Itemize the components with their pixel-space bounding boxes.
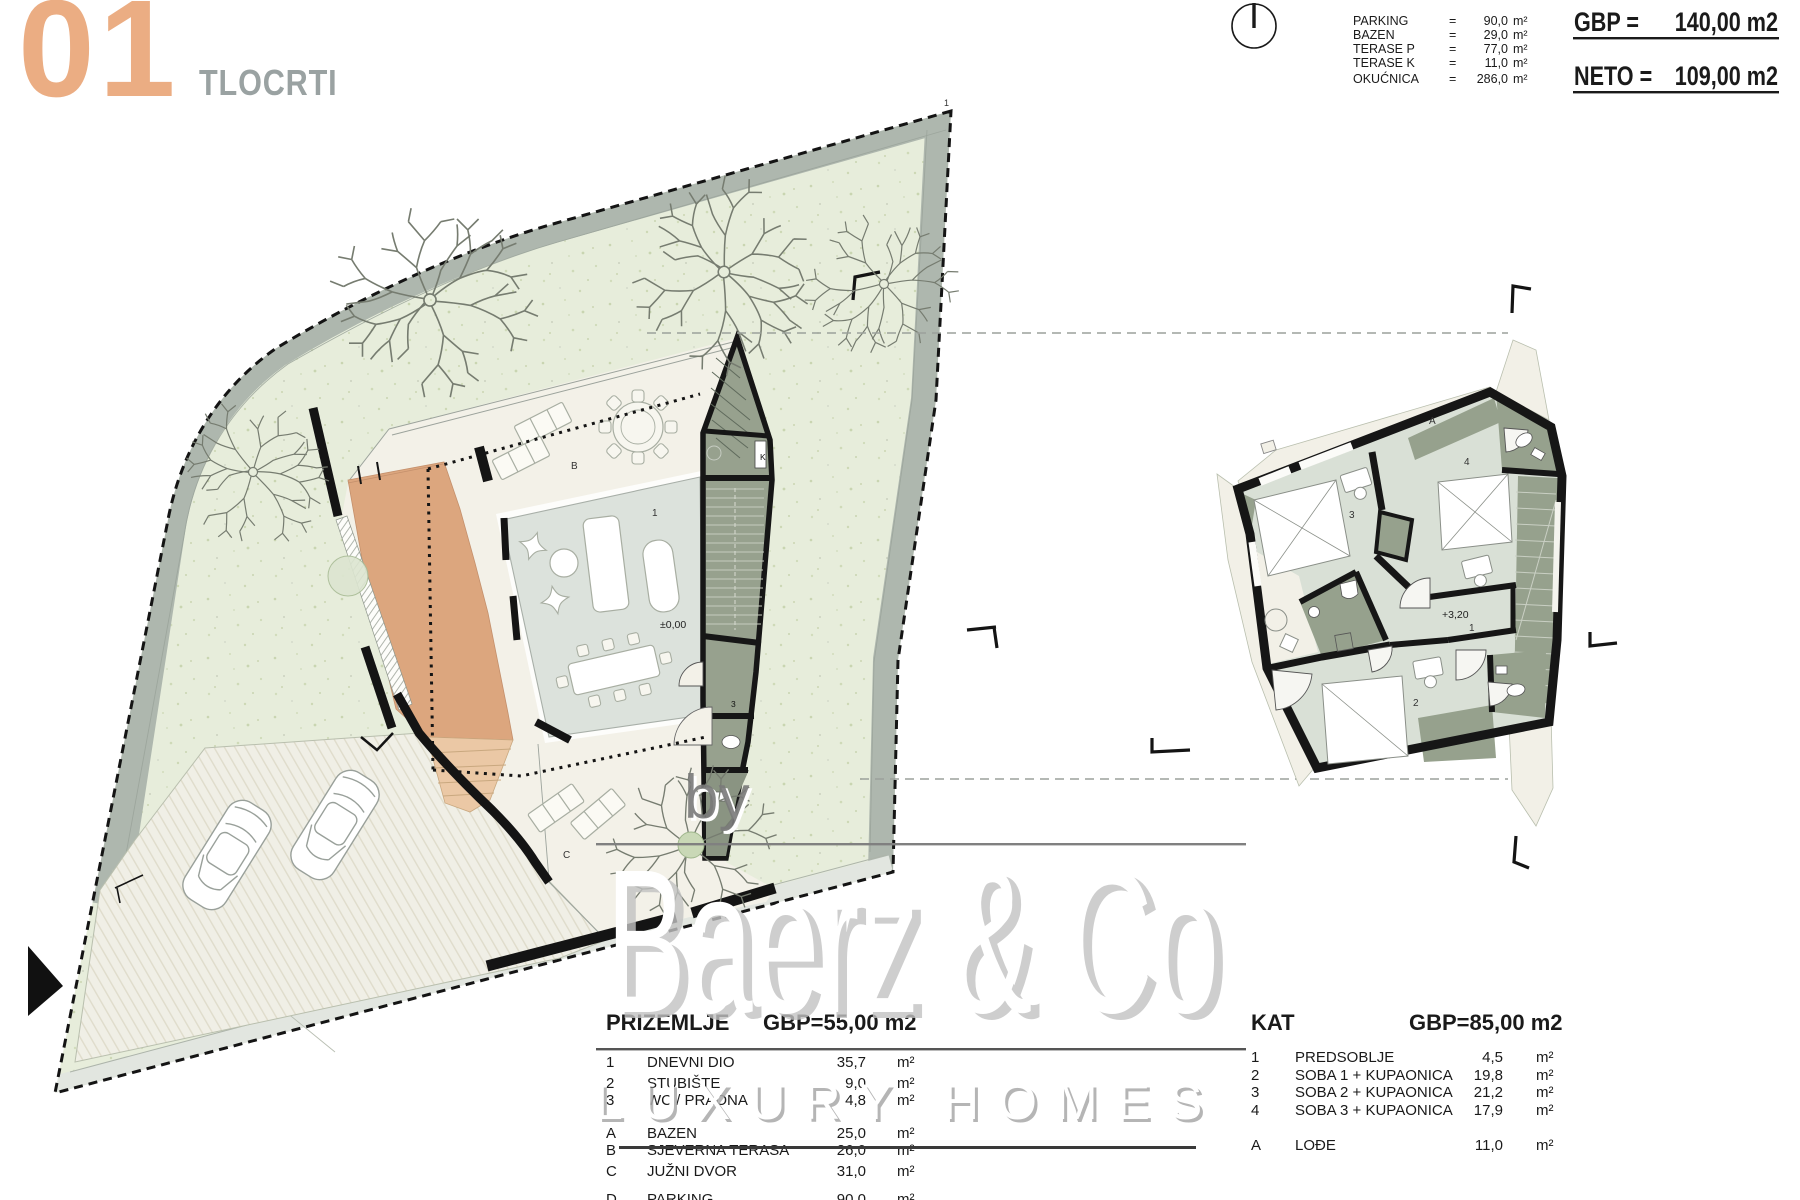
svg-text:17,9: 17,9 xyxy=(1474,1102,1503,1119)
svg-text:C: C xyxy=(563,850,570,861)
svg-text:4: 4 xyxy=(1464,457,1470,468)
svg-text:SOBA 2 + KUPAONICA: SOBA 2 + KUPAONICA xyxy=(1295,1084,1453,1101)
svg-text:K: K xyxy=(760,452,766,462)
svg-text:11,0: 11,0 xyxy=(1485,56,1508,70)
svg-text:m²: m² xyxy=(1536,1102,1554,1119)
svg-text:=: = xyxy=(1449,56,1456,70)
svg-text:01: 01 xyxy=(18,0,180,126)
svg-text:LUXURY HOMES: LUXURY HOMES xyxy=(595,1074,1221,1130)
svg-text:KAT: KAT xyxy=(1251,1010,1295,1035)
svg-text:m²: m² xyxy=(1513,72,1528,86)
svg-text:+3,20: +3,20 xyxy=(1442,609,1469,621)
svg-text:OKUĆNICA: OKUĆNICA xyxy=(1353,71,1420,86)
svg-text:2: 2 xyxy=(1251,1067,1259,1084)
svg-text:3: 3 xyxy=(1251,1084,1259,1101)
svg-text:SJEVERNA TERASA: SJEVERNA TERASA xyxy=(647,1142,789,1159)
svg-text:B: B xyxy=(571,461,578,472)
svg-text:BAZEN: BAZEN xyxy=(1353,28,1395,42)
svg-text:31,0: 31,0 xyxy=(837,1163,866,1180)
svg-text:TERASE K: TERASE K xyxy=(1353,56,1415,70)
svg-text:1: 1 xyxy=(606,1054,614,1071)
svg-text:26,0: 26,0 xyxy=(837,1142,866,1159)
svg-text:m²: m² xyxy=(897,1191,915,1200)
svg-text:GBP=85,00 m2: GBP=85,00 m2 xyxy=(1409,1010,1562,1035)
svg-text:4: 4 xyxy=(1251,1102,1259,1119)
svg-text:PARKING: PARKING xyxy=(647,1191,713,1200)
svg-text:1: 1 xyxy=(944,98,949,108)
svg-text:29,0: 29,0 xyxy=(1484,28,1508,42)
svg-text:1: 1 xyxy=(1469,623,1475,634)
svg-text:SOBA 3 + KUPAONICA: SOBA 3 + KUPAONICA xyxy=(1295,1102,1453,1119)
svg-text:m²: m² xyxy=(897,1163,915,1180)
svg-text:19,8: 19,8 xyxy=(1474,1067,1503,1084)
svg-text:=: = xyxy=(1449,28,1456,42)
svg-text:by: by xyxy=(684,763,749,832)
svg-text:=: = xyxy=(1449,14,1456,28)
svg-text:SOBA 1 + KUPAONICA: SOBA 1 + KUPAONICA xyxy=(1295,1067,1453,1084)
svg-text:11,0: 11,0 xyxy=(1475,1137,1503,1154)
svg-text:4,5: 4,5 xyxy=(1482,1049,1503,1066)
svg-text:Baerz & Co: Baerz & Co xyxy=(606,826,1219,1055)
svg-text:D: D xyxy=(606,1191,617,1200)
svg-text:1: 1 xyxy=(1251,1049,1259,1066)
svg-text:TERASE P: TERASE P xyxy=(1353,42,1415,56)
svg-text:JUŽNI DVOR: JUŽNI DVOR xyxy=(647,1163,737,1180)
svg-text:=: = xyxy=(1449,72,1456,86)
svg-text:m²: m² xyxy=(1513,42,1528,56)
svg-text:3: 3 xyxy=(1349,510,1355,521)
svg-text:90,0: 90,0 xyxy=(837,1191,866,1200)
svg-text:±0,00: ±0,00 xyxy=(660,619,686,631)
svg-text:=: = xyxy=(1449,42,1456,56)
svg-text:21,2: 21,2 xyxy=(1474,1084,1503,1101)
svg-text:m²: m² xyxy=(1513,14,1528,28)
svg-text:TLOCRTI: TLOCRTI xyxy=(199,64,337,104)
svg-text:286,0: 286,0 xyxy=(1477,72,1508,86)
svg-text:m²: m² xyxy=(1536,1049,1554,1066)
svg-text:A: A xyxy=(1429,416,1436,427)
svg-text:PARKING: PARKING xyxy=(1353,14,1408,28)
svg-text:A: A xyxy=(1251,1137,1261,1154)
svg-text:m²: m² xyxy=(1536,1067,1554,1084)
svg-text:1: 1 xyxy=(652,508,658,519)
svg-text:3: 3 xyxy=(731,699,736,709)
svg-text:GBP =: GBP = xyxy=(1574,8,1639,38)
svg-text:2: 2 xyxy=(1413,698,1419,709)
svg-text:m²: m² xyxy=(1536,1084,1554,1101)
svg-text:LOĐE: LOĐE xyxy=(1295,1137,1336,1154)
svg-text:m²: m² xyxy=(897,1142,915,1159)
svg-text:C: C xyxy=(606,1163,617,1180)
svg-text:90,0: 90,0 xyxy=(1484,14,1508,28)
svg-text:m²: m² xyxy=(1536,1137,1554,1154)
svg-text:PREDSOBLJE: PREDSOBLJE xyxy=(1295,1049,1394,1066)
svg-text:77,0: 77,0 xyxy=(1484,42,1508,56)
svg-text:m²: m² xyxy=(1513,28,1528,42)
svg-text:B: B xyxy=(606,1142,616,1159)
svg-text:NETO =: NETO = xyxy=(1574,62,1652,92)
svg-text:140,00 m2: 140,00 m2 xyxy=(1675,8,1778,38)
svg-text:m²: m² xyxy=(1513,56,1528,70)
svg-text:109,00 m2: 109,00 m2 xyxy=(1675,62,1778,92)
